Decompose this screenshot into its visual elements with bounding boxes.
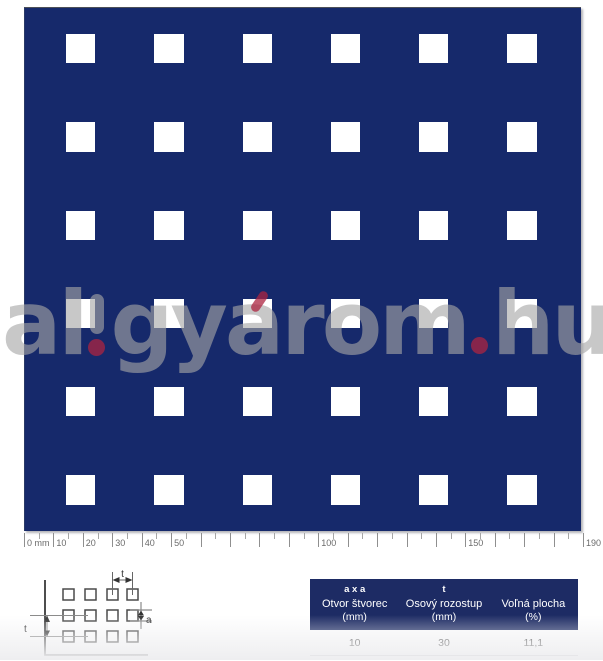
ruler-major-tick [495, 533, 496, 547]
hole [66, 387, 95, 416]
pitch-top-label: t [121, 569, 124, 580]
hole [154, 122, 183, 151]
ruler-label: 50 [174, 538, 184, 548]
ruler-major-tick [289, 533, 290, 547]
ruler-label: 150 [468, 538, 483, 548]
header-col-hole: a x a Otvor štvorec (mm) [310, 584, 399, 624]
ruler-major-tick [201, 533, 202, 547]
ruler-major-tick [83, 533, 84, 547]
ruler-label: 100 [321, 538, 336, 548]
ruler-minor-tick [98, 533, 99, 539]
ruler-major-tick [259, 533, 260, 547]
ruler-major-tick [24, 533, 25, 547]
header-col-open-area: Voľná plocha (%) [489, 584, 578, 624]
ruler-major-tick [436, 533, 437, 547]
hole [243, 122, 272, 151]
col-unit: (mm) [310, 611, 399, 624]
ruler-label: 0 mm [27, 538, 50, 548]
ruler-major-tick [524, 533, 525, 547]
header-col-pitch: t Osový rozostup (mm) [399, 584, 488, 624]
spec-table-values: 10 30 11,1 [310, 630, 578, 656]
hole [419, 122, 448, 151]
col-symbol: a x a [310, 584, 399, 596]
ruler-major-tick [554, 533, 555, 547]
ruler-minor-tick [127, 533, 128, 539]
hole [66, 122, 95, 151]
col-symbol: t [399, 584, 488, 596]
hole [243, 299, 272, 328]
hole [154, 211, 183, 240]
hole [154, 475, 183, 504]
col-name: Voľná plocha [489, 597, 578, 611]
ruler-major-tick [230, 533, 231, 547]
ruler-minor-tick [186, 533, 187, 539]
hole [243, 387, 272, 416]
ruler-minor-tick [245, 533, 246, 539]
ruler-major-tick [377, 533, 378, 547]
hole [331, 122, 360, 151]
hole [66, 211, 95, 240]
ruler-minor-tick [451, 533, 452, 539]
hole-size-label: a [146, 615, 152, 626]
hole [243, 211, 272, 240]
hole [331, 475, 360, 504]
col-symbol [489, 584, 578, 596]
hole [419, 34, 448, 63]
ruler-major-tick [318, 533, 319, 547]
ruler-major-tick [53, 533, 54, 547]
hole [419, 475, 448, 504]
ruler-minor-tick [304, 533, 305, 539]
ruler-minor-tick [215, 533, 216, 539]
col-name: Otvor štvorec [310, 597, 399, 611]
hole [66, 34, 95, 63]
ruler-major-tick [348, 533, 349, 547]
hole [243, 34, 272, 63]
ruler-label: 10 [56, 538, 66, 548]
ruler-label: 20 [86, 538, 96, 548]
hole [507, 34, 536, 63]
hole [154, 34, 183, 63]
hole-dimension-arrows [138, 611, 144, 621]
perforated-panel [24, 7, 581, 531]
ruler: 0 mm1020304050100150190 [24, 533, 603, 559]
ruler-minor-tick [539, 533, 540, 539]
hole [507, 211, 536, 240]
hole [507, 122, 536, 151]
ruler-minor-tick [509, 533, 510, 539]
ruler-major-tick [583, 533, 584, 547]
col-unit: (%) [489, 611, 578, 624]
hole [331, 387, 360, 416]
ruler-minor-tick [156, 533, 157, 539]
hole [507, 387, 536, 416]
hole [154, 387, 183, 416]
ruler-label: 30 [115, 538, 125, 548]
ruler-minor-tick [392, 533, 393, 539]
ruler-major-tick [171, 533, 172, 547]
hole [331, 34, 360, 63]
ruler-major-tick [465, 533, 466, 547]
col-unit: (mm) [399, 611, 488, 624]
hole [419, 299, 448, 328]
hole [243, 475, 272, 504]
pitch-dimension-left [30, 616, 88, 637]
spec-table: a x a Otvor štvorec (mm) t Osový rozostu… [310, 579, 578, 656]
value-open-area: 11,1 [489, 637, 578, 649]
ruler-minor-tick [421, 533, 422, 539]
hole [66, 475, 95, 504]
hole [507, 299, 536, 328]
ruler-major-tick [407, 533, 408, 547]
ruler-major-tick [112, 533, 113, 547]
col-name: Osový rozostup [399, 597, 488, 611]
pitch-left-label: t [24, 624, 27, 635]
ruler-minor-tick [568, 533, 569, 539]
hole [507, 475, 536, 504]
hole [419, 211, 448, 240]
value-hole-size: 10 [310, 637, 399, 649]
ruler-minor-tick [274, 533, 275, 539]
pattern-schematic: t a t [20, 566, 185, 661]
value-pitch: 30 [399, 637, 488, 649]
ruler-major-tick [142, 533, 143, 547]
hole [66, 299, 95, 328]
hole [331, 211, 360, 240]
spec-table-header: a x a Otvor štvorec (mm) t Osový rozostu… [310, 579, 578, 630]
ruler-minor-tick [362, 533, 363, 539]
hole [419, 387, 448, 416]
hole [154, 299, 183, 328]
hole [331, 299, 360, 328]
ruler-label: 40 [145, 538, 155, 548]
ruler-label: 190 [586, 538, 601, 548]
ruler-minor-tick [68, 533, 69, 539]
